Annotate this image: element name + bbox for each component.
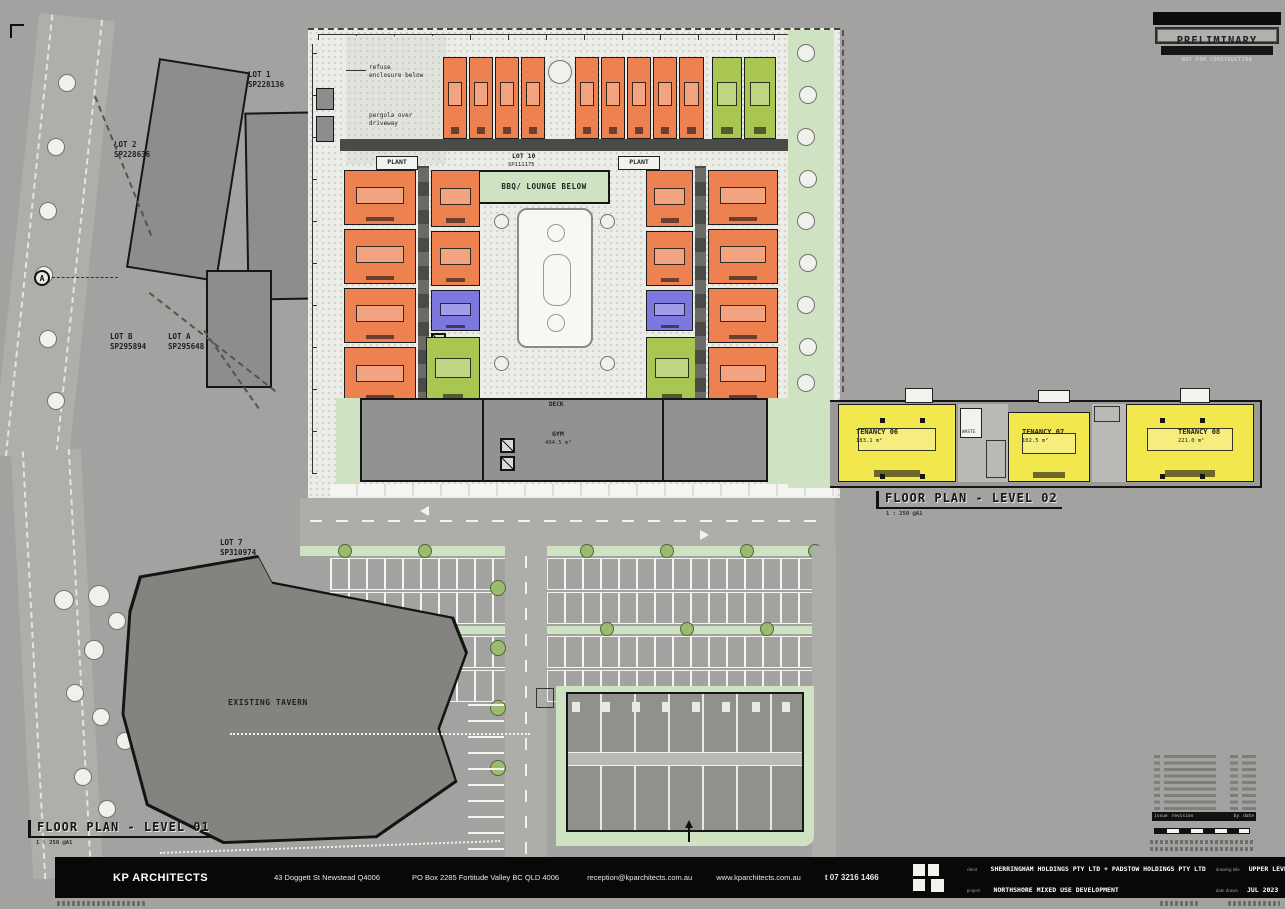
roof-room — [1038, 390, 1070, 403]
stair-hatch — [536, 688, 554, 708]
project-value: NORTHSHORE MIXED USE DEVELOPMENT — [994, 886, 1119, 894]
revision-rows-by — [1230, 752, 1238, 810]
street-tree — [54, 590, 74, 610]
stamp-black-bar — [1153, 12, 1281, 25]
title-block: KP ARCHITECTS 43 Doggett St Newstead Q40… — [55, 857, 1285, 898]
street-tree — [47, 138, 65, 156]
street-tree — [66, 684, 84, 702]
lotb-label: LOT B SP295894 — [110, 332, 146, 352]
road-edge-line — [22, 451, 46, 879]
plot-info-smudge — [1228, 901, 1280, 906]
tenancy-07 — [1008, 412, 1090, 482]
road-centerline — [525, 554, 527, 854]
client-label: client — [967, 867, 978, 872]
apartment-unit — [708, 288, 778, 343]
stair-hatch — [986, 440, 1006, 478]
road-internal-ew — [300, 498, 835, 546]
carpark-tree — [760, 622, 774, 636]
drawing-title-label: drawing title — [1216, 867, 1240, 872]
traffic-arrow — [700, 530, 709, 540]
lota-label: LOT A SP295648 — [168, 332, 204, 352]
revision-rows-description — [1164, 752, 1216, 810]
stair-hatch — [1094, 406, 1120, 422]
refuse-note: refuse enclosure below — [369, 64, 423, 80]
apartment-unit — [679, 57, 704, 139]
apartment-unit — [344, 347, 416, 404]
plan-scale-level01: 1 : 250 @A1 — [36, 841, 72, 847]
courtyard-tree — [494, 214, 509, 229]
street-tree — [58, 74, 76, 92]
road-west-lower — [11, 448, 103, 879]
room-partition — [662, 400, 664, 480]
street-tree — [39, 202, 57, 220]
pool-shape — [543, 254, 571, 306]
apartment-unit — [627, 57, 651, 139]
kp-logo-square — [913, 864, 925, 876]
bbq-lounge-below: BBQ/ LOUNGE BELOW — [478, 170, 610, 204]
courtyard-tree — [548, 60, 572, 84]
apartment-unit — [521, 57, 545, 139]
lot10-label: LOT 10 — [512, 152, 535, 160]
pool-deck — [517, 208, 593, 348]
carpark-median — [300, 546, 835, 556]
street-tree — [39, 330, 57, 348]
traffic-arrow — [420, 506, 429, 516]
bbq-lounge-label: BBQ/ LOUNGE BELOW — [501, 182, 586, 192]
apartment-unit-blue — [431, 290, 480, 331]
grid-marker-a: A — [34, 270, 50, 286]
pedestrian-dotted-line — [230, 733, 530, 735]
street-tree — [799, 170, 817, 188]
apartment-unit-green — [744, 57, 776, 139]
north-arrow-head — [685, 820, 693, 828]
plan-title-level01: FLOOR PLAN - LEVEL 01 — [28, 820, 214, 838]
road-edge-line — [5, 14, 53, 456]
corridor-roof — [340, 139, 812, 151]
north-arrow — [684, 820, 694, 842]
deck-label: DECK — [549, 401, 563, 409]
street-tree — [797, 296, 815, 314]
north-arrow-stem — [688, 828, 690, 842]
room-partition — [482, 400, 484, 480]
lift-core — [500, 456, 515, 471]
parking-column — [468, 700, 504, 850]
street-tree — [88, 585, 110, 607]
street-tree — [799, 338, 817, 356]
lot1-label: LOT 1 SP228136 — [248, 70, 284, 90]
leader-line — [346, 70, 366, 71]
awning-scallop — [330, 484, 835, 497]
roof-room — [905, 388, 933, 403]
apartment-unit — [431, 170, 480, 227]
waste-label: WASTE — [962, 430, 976, 436]
street-tree — [797, 44, 815, 62]
sp-label: SP111175 — [508, 162, 535, 169]
apartment-unit-blue — [646, 290, 693, 331]
copyright-smudge — [57, 901, 147, 906]
parking-row — [330, 558, 830, 590]
carpark-tree — [660, 544, 674, 558]
grid-marker-letter: A — [40, 274, 45, 283]
tenancy-07-name: TENANCY 07 — [1022, 428, 1064, 437]
street-tree — [797, 128, 815, 146]
apartment-unit — [469, 57, 493, 139]
apartment-unit — [708, 229, 778, 284]
existing-tavern-label: EXISTING TAVERN — [228, 698, 308, 708]
scale-caption — [1150, 847, 1255, 851]
tenancy-07-area: 102.5 m² — [1022, 438, 1049, 445]
street-tree — [84, 640, 104, 660]
plan-title-level02: FLOOR PLAN - LEVEL 02 — [876, 491, 1062, 509]
plot-info-smudge — [1160, 901, 1200, 906]
south-building-slab — [566, 692, 804, 832]
apartment-unit — [495, 57, 519, 139]
client-project-column: client SHERRINGHAM HOLDINGS PTY LTD + PA… — [967, 858, 1206, 897]
revision-header-issue: issue — [1154, 812, 1168, 821]
landscape-strip — [336, 398, 360, 484]
apartment-unit-green — [712, 57, 742, 139]
apartment-unit — [344, 288, 416, 343]
revision-rows-date — [1242, 752, 1256, 810]
spa-circle — [547, 314, 565, 332]
apartment-unit — [646, 231, 693, 286]
street-tree — [799, 86, 817, 104]
carpark-tree — [418, 544, 432, 558]
stamp-subtitle: NOT FOR CONSTRUCTION — [1182, 57, 1252, 63]
wing-corridor — [695, 166, 706, 406]
date-value: JUL 2023 — [1247, 886, 1278, 894]
south-building-corridor — [568, 752, 802, 766]
spa-circle — [547, 224, 565, 242]
street-tree — [797, 374, 815, 392]
apartment-unit-green — [426, 337, 480, 404]
apartment-unit-green — [646, 337, 698, 404]
road-edge-line — [68, 449, 92, 877]
street-tree — [797, 212, 815, 230]
pergola-note: pergola over driveway — [369, 112, 412, 128]
roof-room — [1180, 388, 1210, 403]
carpark-tree — [740, 544, 754, 558]
street-tree — [799, 254, 817, 272]
street-tree — [98, 800, 116, 818]
drawing-sheet: PRELIMINARY NOT FOR CONSTRUCTION A LOT 1… — [0, 0, 1285, 909]
carpark-tree — [600, 622, 614, 636]
plant-label: PLANT — [629, 158, 649, 166]
address-street: 43 Doggett St Newstead Q4006 — [274, 873, 380, 882]
apartment-unit — [653, 57, 677, 139]
road-centerline — [310, 520, 825, 522]
lift-core — [500, 438, 515, 453]
courtyard-tree — [494, 356, 509, 371]
drawing-date-column: drawing title UPPER LEVEL PLAN date draw… — [1216, 858, 1285, 897]
gym-label: GYM — [552, 430, 564, 438]
apartment-unit — [708, 170, 778, 225]
kp-logo-square — [913, 879, 925, 891]
client-value: SHERRINGHAM HOLDINGS PTY LTD + PADSTOW H… — [991, 865, 1206, 873]
south-building-windows — [572, 702, 798, 712]
palm-tree — [490, 640, 506, 656]
email: reception@kparchitects.com.au — [587, 873, 692, 882]
kp-logo-square — [928, 864, 939, 876]
company-name: KP ARCHITECTS — [113, 872, 208, 884]
revision-table-header: issue revision by date — [1152, 812, 1256, 821]
revision-header-date: date — [1243, 812, 1254, 821]
lot7-label: LOT 7 SP310974 — [220, 538, 256, 558]
courtyard-tree — [600, 214, 615, 229]
apartment-unit — [431, 231, 480, 286]
service-block — [316, 116, 334, 142]
courtyard-tree — [600, 356, 615, 371]
existing-building-lota — [206, 270, 272, 388]
column-dots — [880, 418, 885, 423]
street-tree — [92, 708, 110, 726]
apartment-unit — [601, 57, 625, 139]
apartment-unit — [443, 57, 467, 139]
gym-area-label: 494.5 m² — [545, 440, 572, 447]
column-dots — [1160, 418, 1165, 423]
pedestrian-dotted-line — [160, 840, 500, 854]
revision-header-revision: revision — [1172, 812, 1194, 821]
stamp-subtitle-bar: NOT FOR CONSTRUCTION — [1161, 46, 1273, 55]
carpark-tree — [338, 544, 352, 558]
existing-building-lot2 — [126, 58, 250, 282]
apartment-unit — [708, 347, 778, 404]
plan-title-text: FLOOR PLAN - LEVEL 01 — [37, 820, 210, 834]
apartment-unit — [344, 229, 416, 284]
tenancy-08-name: TENANCY 08 — [1178, 428, 1220, 437]
street-tree — [74, 768, 92, 786]
address-po-box: PO Box 2285 Fortitude Valley BC QLD 4006 — [412, 873, 559, 882]
site-boundary-east — [842, 30, 844, 392]
project-label: project — [967, 888, 981, 893]
plant-room-west: PLANT — [376, 156, 418, 170]
plan-title-text: FLOOR PLAN - LEVEL 02 — [885, 491, 1058, 505]
kp-logo — [913, 863, 943, 893]
date-label: date drawn — [1216, 888, 1238, 893]
street-tree — [47, 392, 65, 410]
road-internal-east-stub — [812, 546, 836, 860]
service-block — [316, 88, 334, 110]
tenancy-06-name: TENANCY 06 — [856, 428, 898, 437]
apartment-unit — [344, 170, 416, 225]
grid-line — [52, 277, 118, 278]
preliminary-stamp: PRELIMINARY — [1155, 27, 1279, 44]
plan-scale-level02: 1 : 250 @A1 — [886, 512, 922, 518]
tenancy-08-area: 221.0 m² — [1178, 438, 1205, 445]
phone: t 07 3216 1466 — [825, 873, 879, 882]
street-tree — [108, 612, 126, 630]
drawing-title-value: UPPER LEVEL PLAN — [1249, 865, 1285, 873]
kp-logo-square — [931, 879, 944, 892]
palm-tree — [490, 580, 506, 596]
apartment-unit — [575, 57, 599, 139]
plant-label: PLANT — [387, 158, 407, 166]
tenancy-06-area: 183.1 m² — [856, 438, 883, 445]
sheet-corner-tick — [10, 24, 24, 38]
website: www.kparchitects.com.au — [716, 873, 801, 882]
scale-caption — [1150, 840, 1255, 844]
apartment-unit — [646, 170, 693, 227]
carpark-tree — [680, 622, 694, 636]
revision-header-by: by — [1234, 812, 1239, 821]
graphic-scale-bar — [1154, 828, 1250, 834]
plant-room-east: PLANT — [618, 156, 660, 170]
revision-rows-issue — [1154, 752, 1160, 810]
carpark-tree — [580, 544, 594, 558]
